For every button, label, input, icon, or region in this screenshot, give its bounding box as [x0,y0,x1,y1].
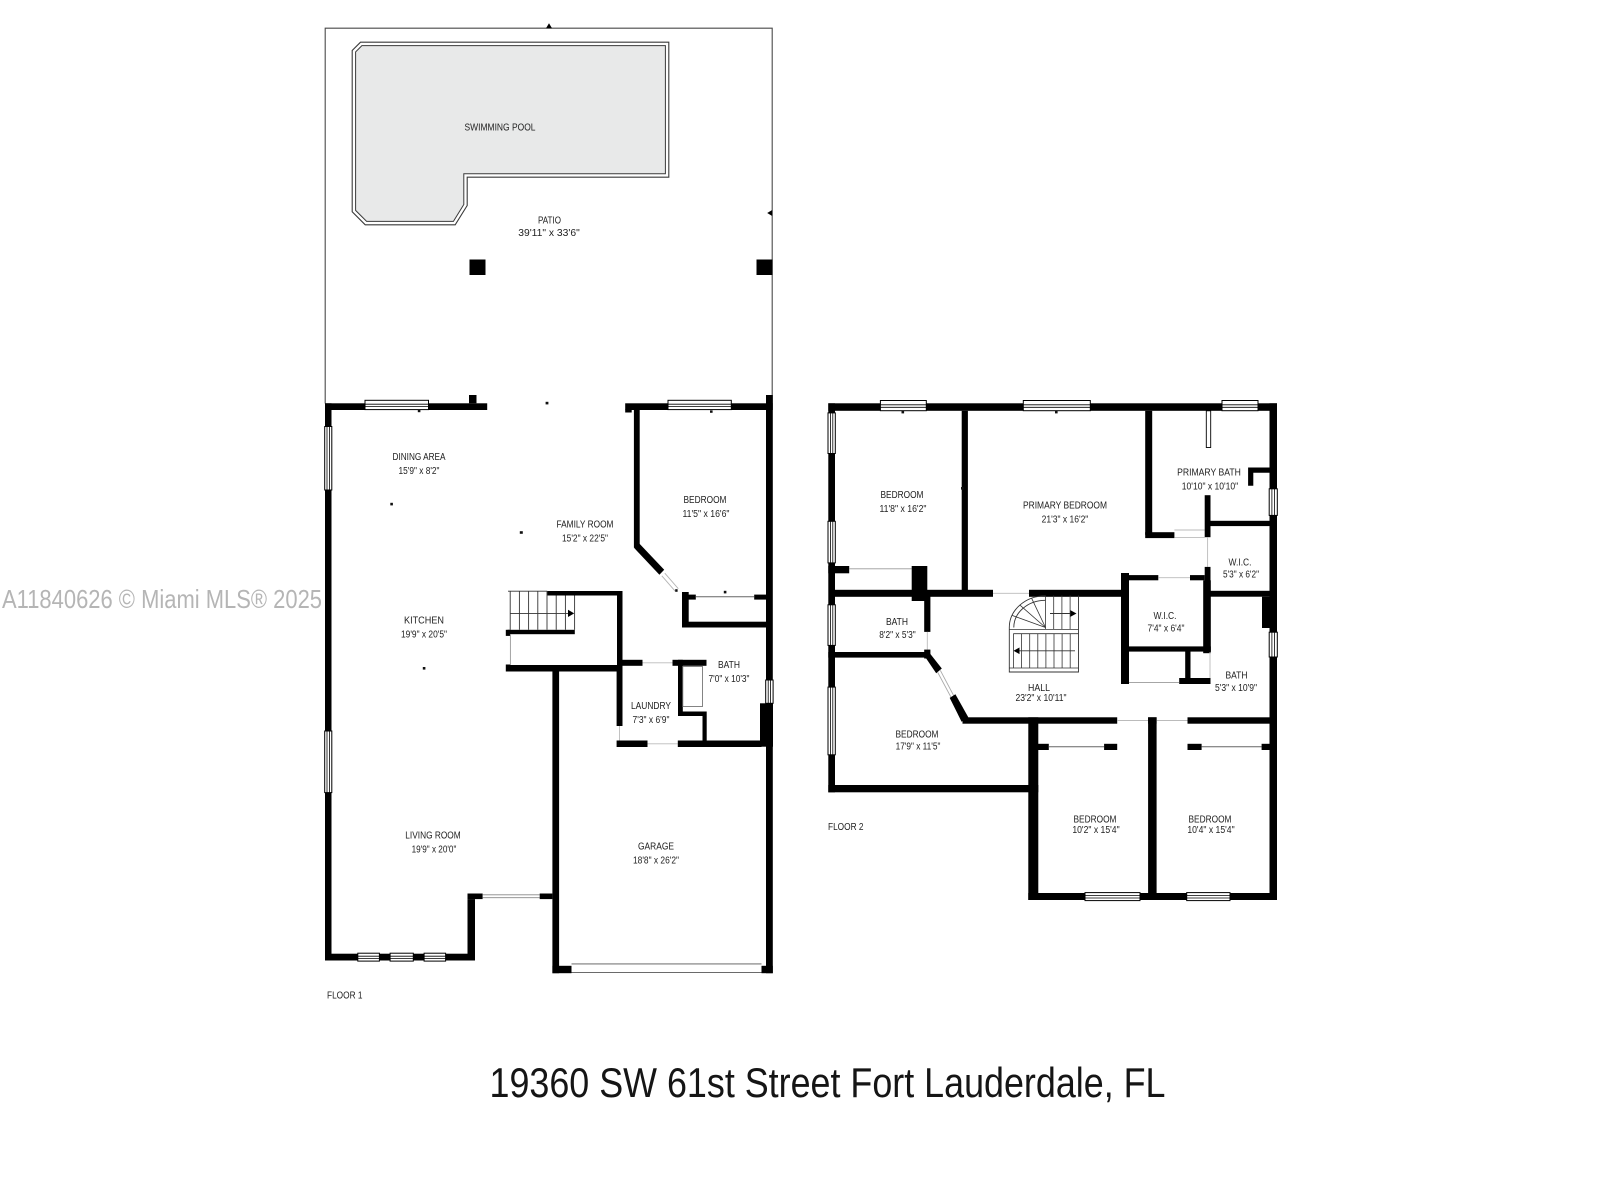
svg-text:5'3" x 6'2": 5'3" x 6'2" [1223,570,1259,581]
svg-text:23'2" x 10'11": 23'2" x 10'11" [1016,693,1067,704]
svg-text:LIVING ROOM: LIVING ROOM [405,831,460,842]
svg-text:FLOOR 1: FLOOR 1 [327,991,363,1002]
svg-text:15'2" x 22'5": 15'2" x 22'5" [562,534,608,545]
svg-text:BEDROOM: BEDROOM [896,730,939,741]
svg-text:LAUNDRY: LAUNDRY [631,701,671,712]
svg-text:DINING AREA: DINING AREA [393,452,446,463]
svg-text:19'9" x 20'5": 19'9" x 20'5" [401,630,447,641]
svg-text:21'3" x 16'2": 21'3" x 16'2" [1042,515,1089,526]
svg-text:10'10" x 10'10": 10'10" x 10'10" [1182,482,1239,493]
svg-text:BEDROOM: BEDROOM [881,490,924,501]
svg-text:SWIMMING POOL: SWIMMING POOL [465,123,536,134]
svg-text:PRIMARY BATH: PRIMARY BATH [1177,468,1241,479]
svg-text:7'3" x 6'9": 7'3" x 6'9" [633,715,670,726]
svg-text:PRIMARY BEDROOM: PRIMARY BEDROOM [1023,501,1107,512]
svg-text:10'4" x 15'4": 10'4" x 15'4" [1187,825,1235,836]
svg-text:5'3" x 10'9": 5'3" x 10'9" [1215,683,1257,694]
svg-text:BATH: BATH [886,617,908,628]
svg-text:PATIO: PATIO [538,216,561,227]
svg-text:GARAGE: GARAGE [638,842,674,853]
svg-text:7'4" x 6'4": 7'4" x 6'4" [1148,624,1185,635]
svg-text:W.I.C.: W.I.C. [1154,611,1177,622]
svg-text:19360 SW 61st Street Fort Laud: 19360 SW 61st Street Fort Lauderdale, FL [490,1059,1166,1106]
svg-text:BEDROOM: BEDROOM [684,495,727,506]
svg-text:11'8" x 16'2": 11'8" x 16'2" [880,504,927,515]
svg-text:8'2" x 5'3": 8'2" x 5'3" [879,630,916,641]
svg-text:BATH: BATH [1226,671,1248,682]
svg-text:18'8" x 26'2": 18'8" x 26'2" [633,856,679,867]
svg-text:10'2" x 15'4": 10'2" x 15'4" [1072,825,1120,836]
svg-text:7'0" x 10'3": 7'0" x 10'3" [709,674,750,685]
svg-text:39'11" x 33'6": 39'11" x 33'6" [518,228,580,239]
svg-text:BEDROOM: BEDROOM [1074,815,1117,826]
svg-text:FAMILY ROOM: FAMILY ROOM [557,520,614,531]
svg-text:19'9" x 20'0": 19'9" x 20'0" [412,845,457,856]
svg-text:A11840626 © Miami MLS® 2025: A11840626 © Miami MLS® 2025 [2,584,322,614]
svg-text:FLOOR 2: FLOOR 2 [828,822,864,833]
svg-text:BEDROOM: BEDROOM [1189,815,1232,826]
svg-text:W.I.C.: W.I.C. [1229,558,1252,569]
svg-text:KITCHEN: KITCHEN [404,616,444,627]
svg-text:11'5" x 16'6": 11'5" x 16'6" [683,509,730,520]
svg-text:BATH: BATH [718,660,740,671]
svg-text:17'9" x 11'5": 17'9" x 11'5" [896,742,941,753]
svg-text:15'9" x 8'2": 15'9" x 8'2" [399,466,440,477]
